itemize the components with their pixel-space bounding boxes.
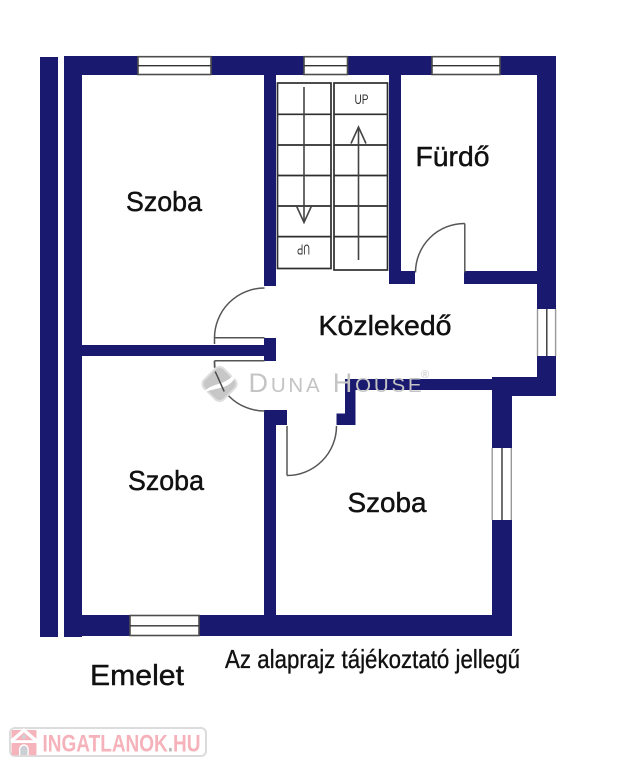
svg-text:®: ® xyxy=(421,369,429,381)
svg-text:Közlekedő: Közlekedő xyxy=(319,310,452,341)
svg-text:Szoba: Szoba xyxy=(126,186,202,217)
svg-text:Szoba: Szoba xyxy=(128,465,204,496)
svg-text:INGATLANOK.HU: INGATLANOK.HU xyxy=(43,731,201,758)
svg-text:UP: UP xyxy=(297,241,310,258)
svg-text:Emelet: Emelet xyxy=(90,660,184,692)
svg-text:Szoba: Szoba xyxy=(348,487,427,518)
svg-text:UP: UP xyxy=(355,92,369,107)
svg-text:Az alaprajz tájékoztató jelleg: Az alaprajz tájékoztató jellegű xyxy=(225,644,520,674)
svg-text:Fürdő: Fürdő xyxy=(416,141,490,172)
